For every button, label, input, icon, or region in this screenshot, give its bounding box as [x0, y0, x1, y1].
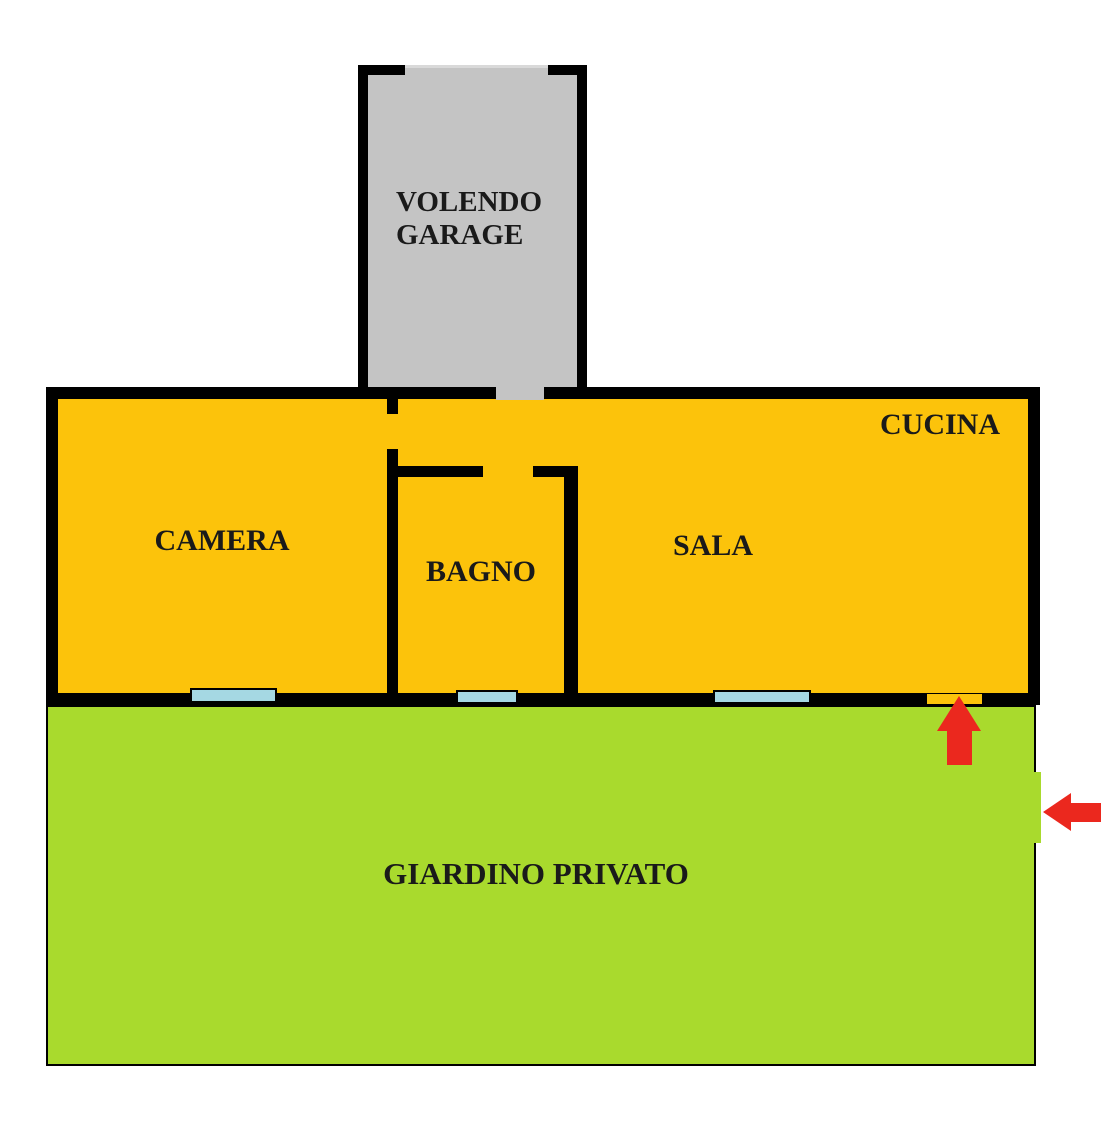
wall-stub-top	[387, 399, 398, 414]
sala-label: SALA	[673, 529, 753, 563]
left-arrow-shaft	[1071, 803, 1101, 822]
floorplan-canvas: VOLENDO GARAGE CAMERA BAGNO SALA CUCINA …	[0, 0, 1114, 1123]
garden-label: GIARDINO PRIVATO	[383, 856, 689, 892]
left-arrow-head	[1043, 793, 1071, 831]
cucina-label: CUCINA	[880, 408, 1000, 442]
wall-camera-bagno	[387, 449, 398, 705]
window-sala	[713, 690, 811, 704]
bagno-label: BAGNO	[426, 555, 536, 589]
garage-door-opening	[405, 65, 548, 78]
garage-label: VOLENDO GARAGE	[396, 186, 568, 252]
up-arrow-shaft	[947, 730, 972, 765]
window-bagno	[456, 690, 518, 704]
camera-label: CAMERA	[155, 524, 290, 558]
garden-gate-opening	[1030, 772, 1041, 843]
up-arrow-head	[937, 696, 981, 731]
wall-bagno-top-left	[398, 466, 483, 477]
wall-bagno-right	[564, 466, 578, 705]
window-camera	[190, 688, 277, 703]
garage-house-door-opening	[496, 387, 544, 400]
